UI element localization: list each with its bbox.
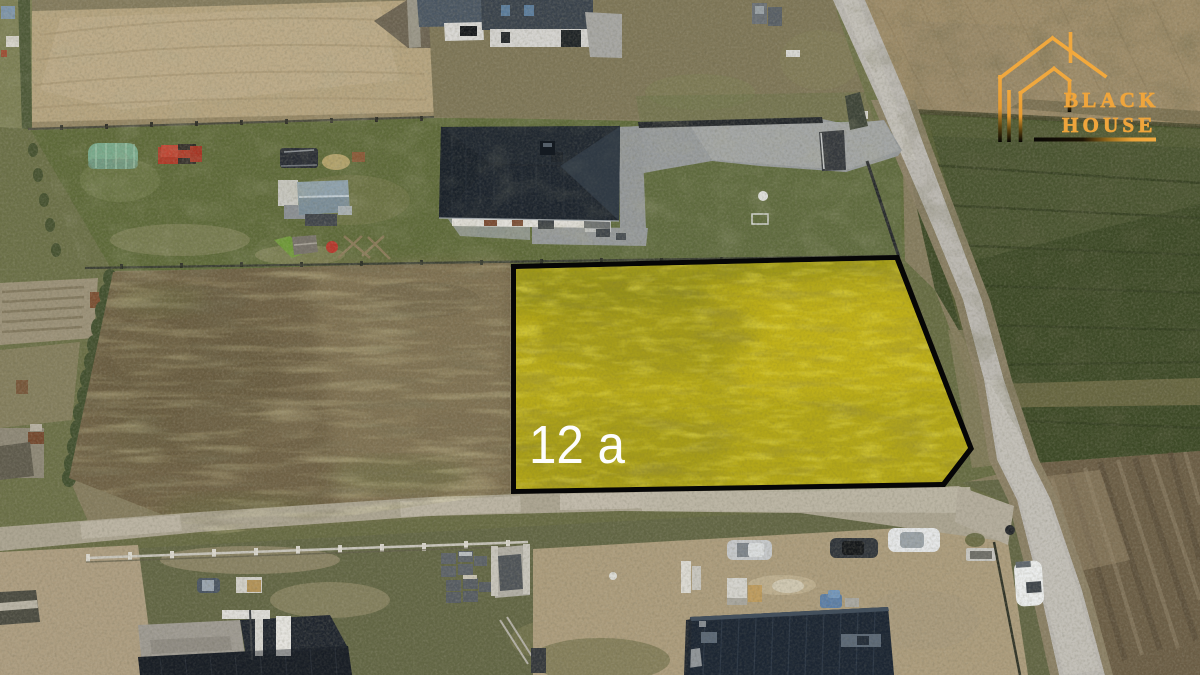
svg-text:12 a: 12 a <box>529 415 626 475</box>
svg-text:BLACK: BLACK <box>1064 88 1160 112</box>
svg-text:HOUSE: HOUSE <box>1062 113 1157 137</box>
